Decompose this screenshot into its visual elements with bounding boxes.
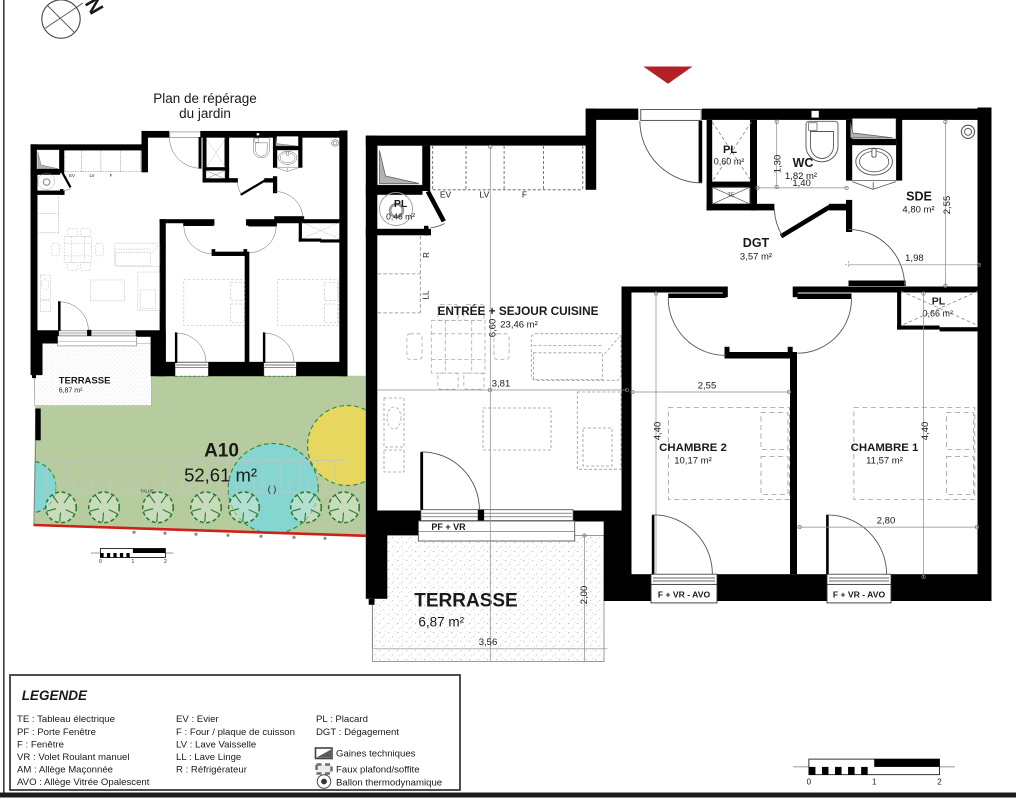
svg-text:EV : Evier: EV : Evier — [176, 714, 219, 725]
svg-text:LL : Lave Linge: LL : Lave Linge — [176, 752, 241, 763]
svg-text:F : Fenêtre: F : Fenêtre — [17, 739, 64, 750]
svg-text:Gaines techniques: Gaines techniques — [336, 749, 416, 760]
svg-text:F + VR - AVO: F + VR - AVO — [658, 590, 711, 600]
svg-text:ENTRÉE + SEJOUR CUISINE: ENTRÉE + SEJOUR CUISINE — [438, 304, 599, 318]
svg-text:R : Réfrigérateur: R : Réfrigérateur — [176, 765, 248, 776]
svg-text:6,87 m²: 6,87 m² — [418, 615, 464, 630]
svg-text:DGT: DGT — [743, 236, 770, 250]
svg-text:LV: LV — [480, 190, 490, 200]
svg-text:2,80: 2,80 — [877, 516, 896, 527]
svg-text:4,40: 4,40 — [653, 422, 664, 441]
svg-text:1: 1 — [872, 778, 877, 787]
svg-text:( ): ( ) — [268, 484, 277, 494]
svg-text:DGT : Dégagement: DGT : Dégagement — [316, 727, 399, 738]
svg-text:R: R — [422, 252, 431, 258]
svg-text:WC: WC — [793, 156, 814, 170]
svg-text:VR : Volet Roulant manuel: VR : Volet Roulant manuel — [17, 752, 130, 763]
svg-text:F: F — [522, 190, 527, 200]
svg-text:0,66 m²: 0,66 m² — [923, 309, 954, 319]
svg-text:TE : Tableau électrique: TE : Tableau électrique — [17, 714, 115, 725]
svg-text:PL: PL — [723, 144, 737, 156]
svg-text:LEGENDE: LEGENDE — [22, 688, 88, 703]
svg-text:0,60 m²: 0,60 m² — [714, 157, 745, 167]
svg-text:LV: LV — [89, 173, 94, 178]
svg-text:AM : Allège Maçonnée: AM : Allège Maçonnée — [17, 765, 113, 776]
svg-text:A10: A10 — [204, 441, 239, 462]
svg-text:11,57 m²: 11,57 m² — [866, 456, 903, 467]
svg-text:4,80 m²: 4,80 m² — [902, 205, 934, 216]
svg-text:PL : Placard: PL : Placard — [316, 714, 368, 725]
svg-text:du jardin: du jardin — [179, 106, 231, 121]
svg-text:1,40: 1,40 — [792, 178, 811, 189]
svg-text:PL: PL — [394, 198, 408, 210]
svg-text:23,46 m²: 23,46 m² — [500, 320, 538, 331]
svg-text:LL: LL — [422, 290, 431, 299]
svg-text:Faux plafond/soffite: Faux plafond/soffite — [336, 765, 420, 776]
svg-text:TE: TE — [727, 193, 734, 199]
svg-text:2,55: 2,55 — [942, 196, 953, 215]
svg-text:LV : Lave Vaisselle: LV : Lave Vaisselle — [176, 739, 256, 750]
svg-text:0: 0 — [99, 559, 102, 565]
svg-text:1,30: 1,30 — [773, 155, 784, 174]
svg-text:6,60: 6,60 — [488, 319, 499, 338]
svg-text:TALUS: TALUS — [140, 489, 153, 494]
svg-text:6,87 m²: 6,87 m² — [59, 388, 83, 395]
svg-text:2: 2 — [164, 559, 167, 565]
svg-text:SDE: SDE — [906, 190, 932, 204]
svg-text:1,98: 1,98 — [905, 253, 924, 264]
svg-text:TERRASSE: TERRASSE — [59, 376, 111, 387]
svg-text:3,81: 3,81 — [492, 379, 511, 390]
svg-text:2,00: 2,00 — [579, 586, 590, 605]
svg-text:CHAMBRE 2: CHAMBRE 2 — [659, 442, 727, 454]
svg-text:EV: EV — [440, 190, 452, 200]
svg-text:Plan de répérage: Plan de répérage — [153, 91, 257, 106]
svg-text:EV: EV — [69, 173, 75, 178]
svg-text:TERRASSE: TERRASSE — [414, 591, 517, 612]
svg-text:10,17 m²: 10,17 m² — [674, 456, 712, 467]
svg-text:0,46 m²: 0,46 m² — [386, 212, 415, 222]
svg-text:F: F — [110, 173, 113, 178]
svg-text:PL: PL — [932, 296, 946, 308]
svg-text:2,55: 2,55 — [698, 381, 717, 392]
svg-text:PF : Porte Fenêtre: PF : Porte Fenêtre — [17, 727, 96, 738]
svg-text:52,61 m²: 52,61 m² — [184, 465, 257, 486]
svg-text:F : Four / plaque de cuisson: F : Four / plaque de cuisson — [176, 727, 295, 738]
svg-text:4,40: 4,40 — [920, 422, 931, 441]
svg-text:Ballon thermodynamique: Ballon thermodynamique — [336, 778, 442, 789]
svg-text:PF + VR: PF + VR — [431, 522, 466, 532]
svg-text:3,57 m²: 3,57 m² — [740, 252, 772, 263]
svg-text:2: 2 — [937, 778, 942, 787]
svg-text:3,56: 3,56 — [479, 637, 498, 648]
svg-text:F + VR - AVO: F + VR - AVO — [833, 590, 886, 600]
svg-text:1: 1 — [132, 559, 135, 565]
svg-text:AVO : Allège Vitrée Opalescen: AVO : Allège Vitrée Opalescent — [17, 777, 150, 788]
svg-text:0: 0 — [807, 778, 812, 787]
svg-text:CHAMBRE 1: CHAMBRE 1 — [851, 442, 919, 454]
